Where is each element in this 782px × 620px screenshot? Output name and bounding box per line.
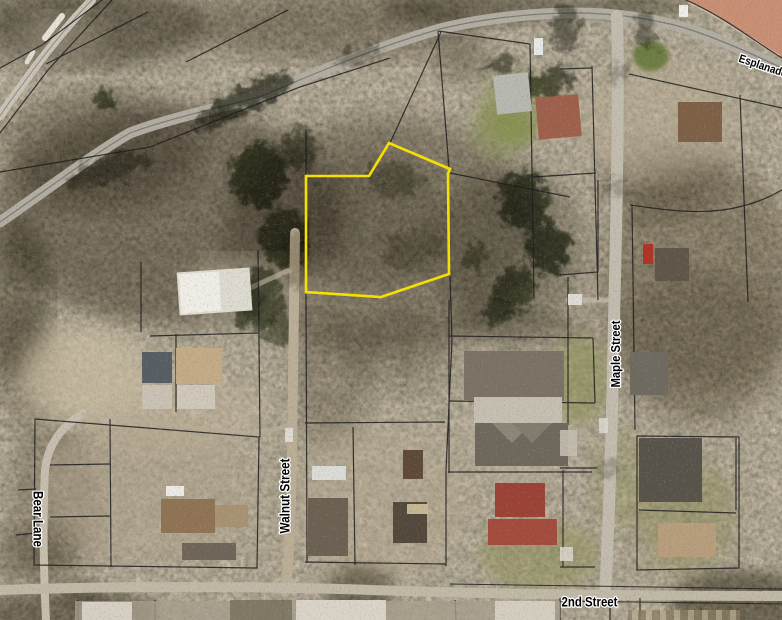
- svg-text:Maple Street: Maple Street: [608, 320, 623, 388]
- svg-text:2nd Street: 2nd Street: [562, 595, 618, 610]
- svg-text:Bear Lane: Bear Lane: [31, 491, 46, 547]
- svg-text:Walnut Street: Walnut Street: [278, 458, 293, 533]
